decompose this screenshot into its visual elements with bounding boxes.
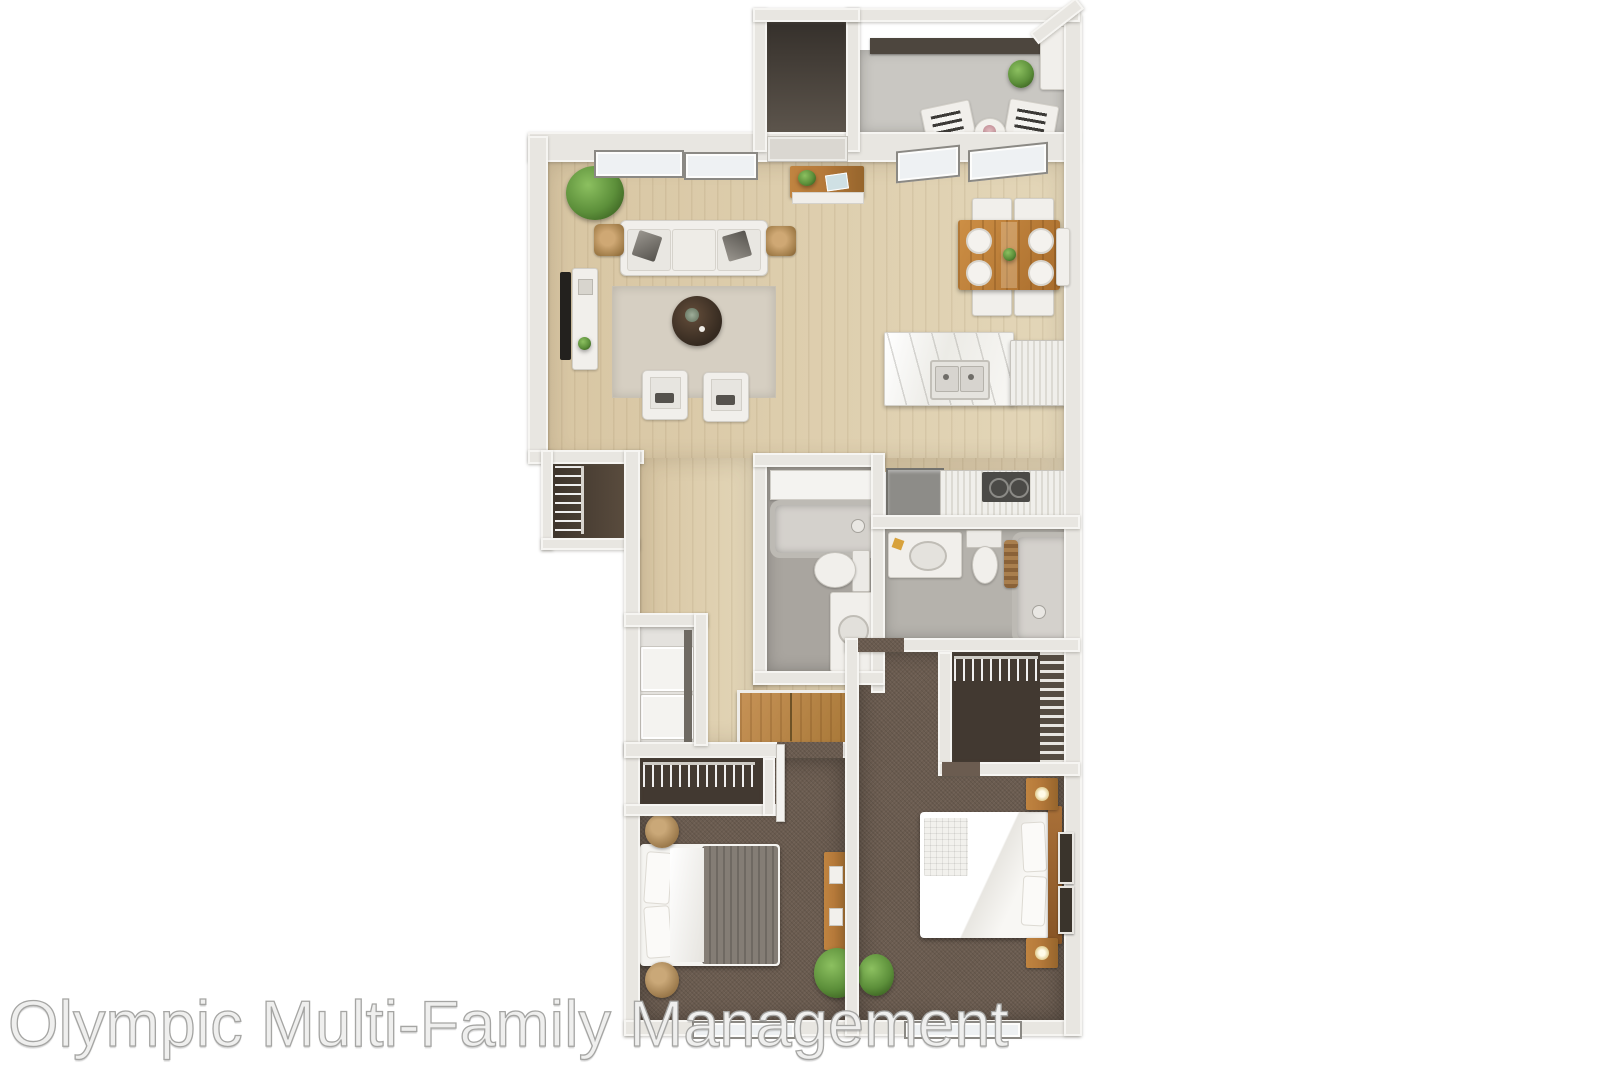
entry-door [767,136,848,162]
wall-bathroom1-bottom [753,671,885,685]
dining-window [896,145,960,184]
wall-bedroom2-closet-right [763,758,775,816]
desk-papers [829,866,843,884]
master-bed [920,812,1050,938]
console-plant [578,337,591,350]
sofa-cushion [672,229,716,271]
bed-pillow [643,851,673,905]
floor-plan [0,0,1619,1080]
coffee-table [672,296,722,346]
dining-chair [1014,288,1054,316]
entry-console-tray [825,173,849,192]
master-wall-art [1058,886,1074,934]
tv-console [572,268,598,370]
armchair-pillow [716,395,735,405]
coffee-table-decor [685,308,699,322]
wall-entry-top [753,8,860,22]
dining-centerpiece [1003,248,1016,261]
wall-bathroom1-top [753,453,885,467]
bathroom1-door [770,470,872,500]
vanity-sink-oval [909,541,947,571]
wall-hall-left [624,450,640,756]
entry-floor [767,22,846,142]
coat-closet-hangers [555,466,584,534]
cooktop [982,472,1030,502]
place-setting [966,260,992,286]
bathroom2-toilet-bowl [972,546,998,584]
wall-kitchen-back [871,515,1080,529]
towel [1004,540,1018,588]
bathroom1-toilet-bowl [814,552,856,588]
bathroom2-vanity [888,532,962,578]
bedroom2-door-leaf [776,744,785,822]
armchair-left [642,370,688,420]
vanity-decor-gold [892,538,905,551]
burner [1009,478,1029,498]
console-decor [578,279,593,295]
walkin-closet-opening [942,762,980,776]
nightstand [1026,938,1058,968]
side-table-right [766,226,796,256]
place-setting [1028,260,1054,286]
armchair-pillow [655,393,674,403]
coffee-table-decor [699,326,705,332]
living-window [594,150,684,178]
nightstand [1026,778,1058,810]
island-bar-counter [1010,340,1068,406]
armchair-right [703,372,749,422]
tv-screen [560,272,571,360]
wall-walkin-closet-left [938,652,952,776]
sink-faucet [968,374,974,380]
master-door-opening [858,638,904,652]
waffle-blanket [924,818,968,876]
lamp [1035,946,1049,960]
master-wall-art [1058,832,1074,884]
pouf [645,814,679,848]
burner [989,478,1009,498]
watermark-text: Olympic Multi-Family Management [8,986,1009,1061]
wall-balcony-left [846,8,860,152]
lamp [1035,787,1049,801]
living-window [684,152,758,180]
wall-entry-left [753,8,767,152]
dining-table [958,220,1060,290]
balcony-plant [1008,60,1034,88]
walk-in-closet-hangers [954,656,1038,681]
closet-door-divider [790,693,792,741]
bed-pillow [1021,821,1048,872]
sofa [620,220,768,276]
bed-sheet-fold [670,848,704,962]
wall-coat-closet-left [541,450,553,550]
entry-console-table [790,166,864,198]
entry-console-shelf [792,192,864,204]
place-setting [1028,228,1054,254]
bedroom2-door-opening [777,742,843,758]
wall-bathroom1-right [871,453,885,693]
walk-in-closet-shelves [1040,652,1064,762]
island-sink [930,360,990,400]
dining-chair [972,288,1012,316]
wall-bedroom-divider [845,638,859,1036]
bed-pillow [1021,875,1048,926]
bedroom2-closet-hangers [643,762,755,787]
entry-console-plant [798,170,816,186]
bed-pillow [643,905,673,959]
wall-left [528,136,548,462]
bedroom2-bed [640,844,780,966]
sink-faucet [943,374,949,380]
wall-laundry-right [694,613,708,746]
tub-faucet [851,519,865,533]
tub-faucet [1032,605,1046,619]
wall-bathroom1-left [753,453,767,685]
wall-bedroom2-closet-bottom [624,804,776,816]
dining-bench [1056,228,1070,286]
place-setting [966,228,992,254]
desk-papers [829,908,843,926]
bedroom2-desk [824,852,846,950]
hall-closet-sliding-doors [737,690,851,750]
side-table-left [594,224,624,256]
bed-blanket [702,846,778,964]
floor-plan-stage: Olympic Multi-Family Management [0,0,1619,1080]
laundry-door-slit [684,630,692,742]
